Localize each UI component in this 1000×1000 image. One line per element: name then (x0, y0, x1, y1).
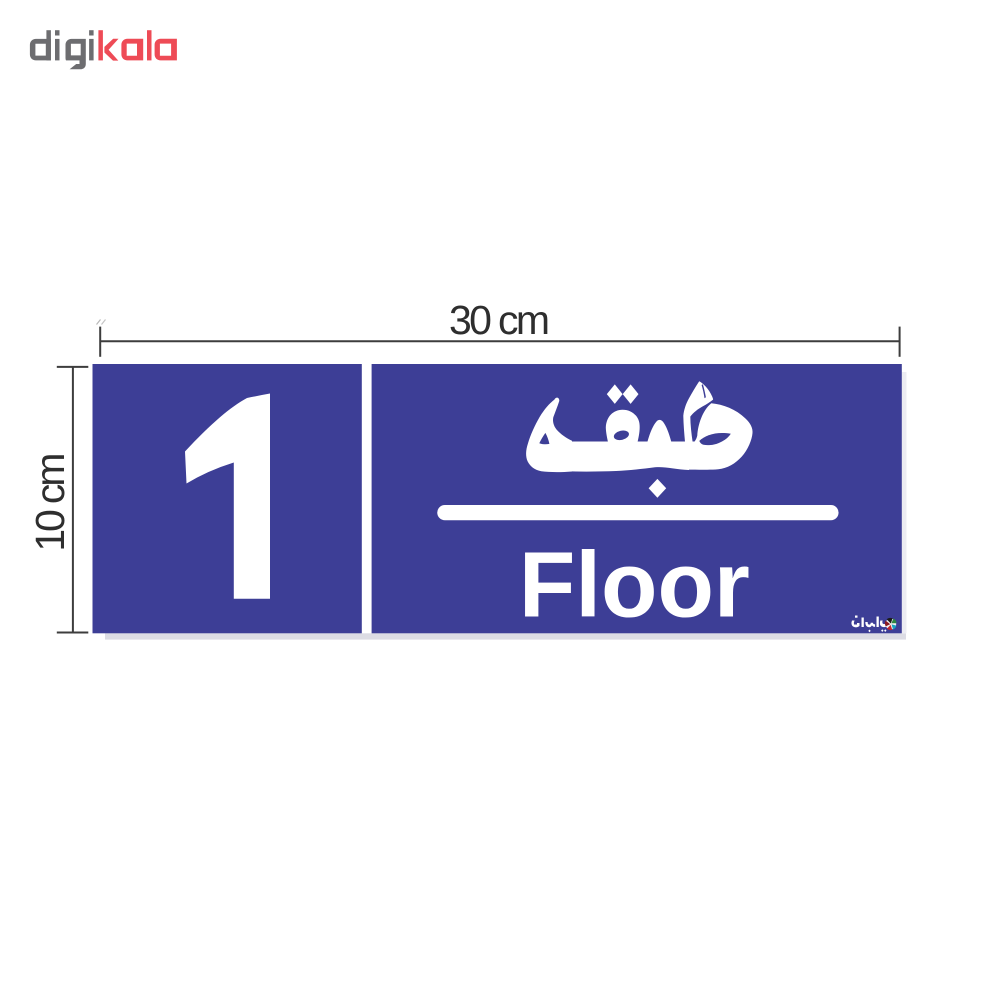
svg-text:10 cm: 10 cm (27, 453, 73, 552)
svg-text:30 cm: 30 cm (449, 297, 550, 343)
svg-text:Floor: Floor (519, 533, 750, 637)
